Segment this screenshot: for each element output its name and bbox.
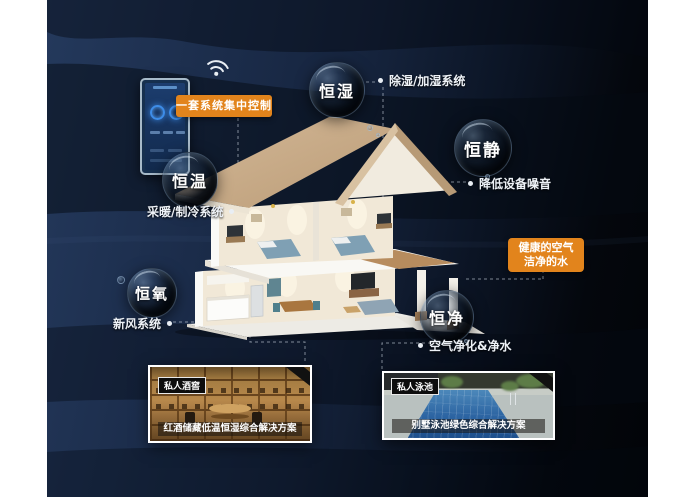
note-heng-shi: 除湿/加湿系统 <box>378 72 465 89</box>
phone-stat <box>163 131 173 134</box>
note-heng-wen: 采暖/制冷系统 <box>147 203 234 220</box>
health-tag-line1: 健康的空气 <box>510 241 582 255</box>
bubble-heng-wen: 恒温 <box>162 152 218 208</box>
note-text: 新风系统 <box>113 315 161 332</box>
health-tag-line2: 洁净的水 <box>510 255 582 269</box>
pool-card-caption: 别墅泳池绿色综合解决方案 <box>392 419 544 433</box>
mini-bubble <box>117 276 125 284</box>
phone-control <box>168 149 182 152</box>
note-heng-yang: 新风系统 <box>113 315 172 332</box>
wine-card-caption: 红酒储藏低温恒湿综合解决方案 <box>158 422 302 436</box>
dial-icon <box>150 105 165 120</box>
phone-control <box>150 149 164 152</box>
pool-plant <box>441 376 463 388</box>
wine-table <box>209 404 251 413</box>
note-text: 空气净化&净水 <box>429 337 511 354</box>
bubble-heng-shi: 恒湿 <box>309 62 365 118</box>
health-tag: 健康的空气 洁净的水 <box>508 238 584 272</box>
phone-stat <box>176 131 185 134</box>
note-heng-jin: 空气净化&净水 <box>418 337 511 354</box>
bubble-heng-jin: 恒净 <box>420 290 474 344</box>
wine-card-badge: 私人酒窖 <box>158 377 206 394</box>
bullet-dot <box>378 78 383 83</box>
phone-titlebar <box>153 86 177 89</box>
mini-bubble <box>367 125 373 131</box>
note-text: 除湿/加湿系统 <box>389 72 465 89</box>
note-text: 降低设备噪音 <box>479 175 551 192</box>
mini-bubble <box>376 133 380 137</box>
central-control-tag: 一套系统集中控制 <box>176 95 272 117</box>
pool-card-badge: 私人泳池 <box>391 378 439 395</box>
pool-plant <box>501 381 519 391</box>
bullet-dot <box>468 181 473 186</box>
bubble-heng-jing: 恒静 <box>454 119 512 177</box>
pool-card: 私人泳池 别墅泳池绿色综合解决方案 <box>382 371 555 440</box>
bullet-dot <box>167 321 172 326</box>
bullet-dot <box>418 343 423 348</box>
phone-stat <box>150 131 160 134</box>
wine-cellar-card: 私人酒窖 红酒储藏低温恒湿综合解决方案 <box>148 365 312 443</box>
pool-ladder <box>510 393 516 405</box>
smart-home-scene: 一套系统集中控制 健康的空气 洁净的水 恒湿 恒静 恒温 恒氧 恒净 除湿/加湿… <box>47 0 648 497</box>
bullet-dot <box>229 209 234 214</box>
note-heng-jing: 降低设备噪音 <box>468 175 551 192</box>
bubble-heng-yang: 恒氧 <box>127 268 177 318</box>
infographic-stage: 一套系统集中控制 健康的空气 洁净的水 恒湿 恒静 恒温 恒氧 恒净 除湿/加湿… <box>0 0 700 497</box>
note-text: 采暖/制冷系统 <box>147 203 223 220</box>
